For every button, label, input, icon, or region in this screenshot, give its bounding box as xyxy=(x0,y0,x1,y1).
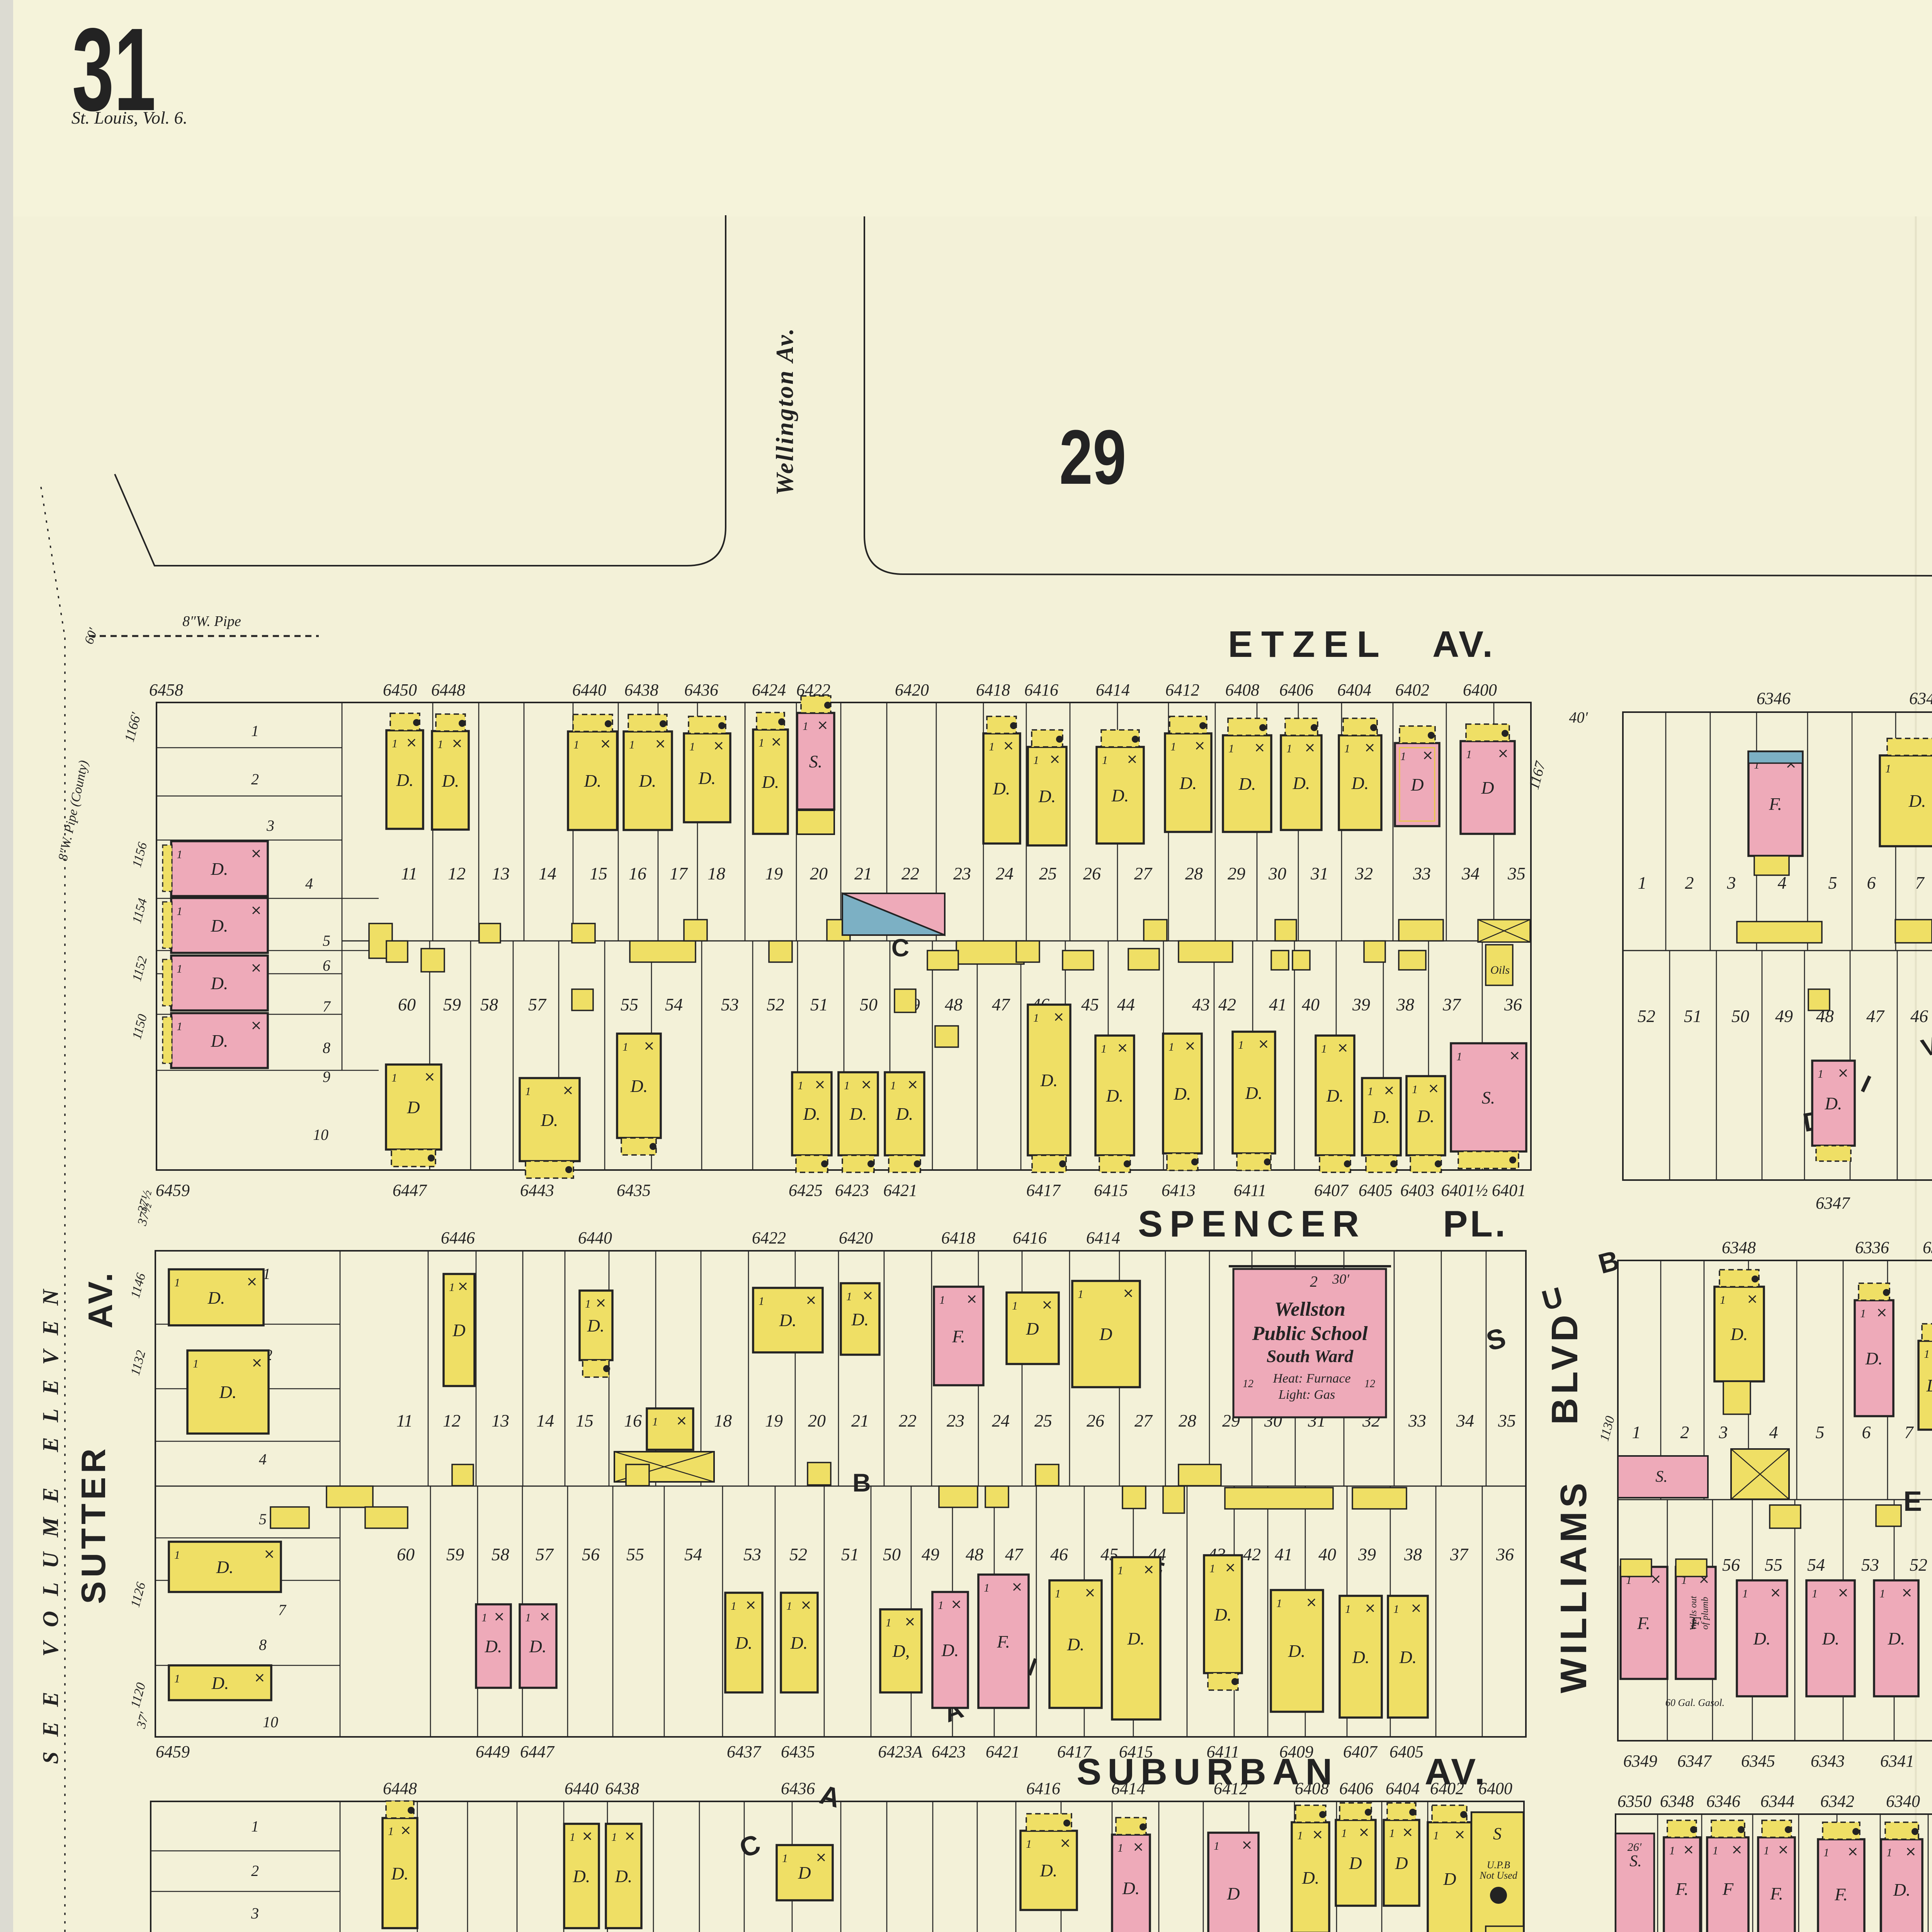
svg-text:6435: 6435 xyxy=(781,1742,815,1761)
svg-text:37: 37 xyxy=(1442,995,1461,1014)
svg-text:1: 1 xyxy=(1638,873,1647,893)
svg-text:6347: 6347 xyxy=(1677,1752,1712,1770)
svg-text:6406: 6406 xyxy=(1339,1779,1373,1798)
svg-text:4: 4 xyxy=(259,1451,267,1468)
svg-text:22: 22 xyxy=(901,864,919,883)
svg-text:D.: D. xyxy=(541,1110,558,1130)
svg-text:1: 1 xyxy=(1400,750,1406,763)
svg-text:D.: D. xyxy=(1351,773,1369,793)
svg-text:1: 1 xyxy=(177,905,182,918)
svg-text:D: D xyxy=(406,1097,420,1117)
svg-text:6401: 6401 xyxy=(1492,1181,1526,1200)
svg-text:5: 5 xyxy=(1828,873,1837,893)
svg-text:SPENCER: SPENCER xyxy=(1138,1203,1366,1245)
svg-text:31: 31 xyxy=(1310,864,1328,883)
svg-text:6346: 6346 xyxy=(1706,1792,1740,1811)
svg-text:58: 58 xyxy=(492,1544,509,1564)
svg-text:F.: F. xyxy=(1637,1613,1650,1633)
svg-text:6402: 6402 xyxy=(1430,1779,1464,1798)
svg-text:1: 1 xyxy=(1818,1068,1823,1080)
svg-text:1: 1 xyxy=(437,738,443,751)
svg-text:D.: D. xyxy=(1288,1641,1306,1661)
svg-text:6402: 6402 xyxy=(1395,680,1429,699)
svg-text:D.: D. xyxy=(1122,1878,1140,1898)
svg-text:1: 1 xyxy=(984,1582,990,1594)
svg-text:6436: 6436 xyxy=(781,1779,815,1798)
svg-text:12: 12 xyxy=(1364,1378,1375,1390)
svg-text:1: 1 xyxy=(611,1831,617,1844)
svg-text:1: 1 xyxy=(1297,1829,1303,1842)
svg-text:1: 1 xyxy=(1117,1842,1123,1854)
svg-text:1: 1 xyxy=(1632,1422,1641,1442)
svg-text:37: 37 xyxy=(1450,1544,1469,1564)
svg-text:6424: 6424 xyxy=(752,680,786,699)
svg-text:32: 32 xyxy=(1355,864,1373,883)
svg-text:42: 42 xyxy=(1218,995,1236,1014)
svg-text:6415: 6415 xyxy=(1094,1181,1128,1200)
svg-text:1: 1 xyxy=(1276,1597,1282,1610)
svg-text:6344: 6344 xyxy=(1760,1792,1794,1811)
svg-text:29: 29 xyxy=(1228,864,1245,883)
svg-text:51: 51 xyxy=(810,995,828,1014)
svg-text:1: 1 xyxy=(388,1825,394,1838)
svg-text:D.: D. xyxy=(639,771,656,791)
svg-text:27: 27 xyxy=(1134,1411,1153,1430)
svg-text:6411: 6411 xyxy=(1234,1181,1267,1200)
svg-text:20: 20 xyxy=(808,1411,826,1430)
svg-text:1: 1 xyxy=(1886,1846,1892,1859)
svg-text:1: 1 xyxy=(1885,762,1891,775)
svg-text:5: 5 xyxy=(1816,1422,1825,1442)
svg-text:53: 53 xyxy=(1861,1555,1879,1575)
svg-text:6408: 6408 xyxy=(1295,1779,1329,1798)
svg-text:6413: 6413 xyxy=(1162,1181,1196,1200)
svg-text:46: 46 xyxy=(1050,1544,1068,1564)
svg-text:1: 1 xyxy=(177,1020,182,1033)
svg-text:6344: 6344 xyxy=(1909,689,1932,708)
svg-text:1: 1 xyxy=(1860,1307,1866,1320)
svg-text:1: 1 xyxy=(890,1079,896,1092)
svg-text:6409: 6409 xyxy=(1279,1742,1313,1761)
svg-text:D: D xyxy=(1481,778,1494,798)
svg-text:S E E V O L U M E E L E V: S E E V O L U M E E L E V E N xyxy=(38,1285,63,1764)
svg-text:57: 57 xyxy=(528,995,547,1014)
svg-text:1: 1 xyxy=(1238,1039,1244,1051)
svg-text:6416: 6416 xyxy=(1024,680,1058,699)
svg-text:2: 2 xyxy=(1685,873,1694,893)
svg-text:1: 1 xyxy=(689,740,695,753)
svg-text:6417: 6417 xyxy=(1026,1181,1061,1200)
svg-text:15: 15 xyxy=(590,864,607,883)
svg-text:D.: D. xyxy=(803,1104,821,1124)
svg-text:D.: D. xyxy=(391,1864,409,1883)
svg-text:BLVD: BLVD xyxy=(1544,1311,1585,1425)
svg-text:51: 51 xyxy=(841,1544,859,1564)
svg-text:6330: 6330 xyxy=(1923,1238,1932,1257)
svg-text:D.: D. xyxy=(1173,1084,1191,1104)
svg-text:52: 52 xyxy=(1638,1006,1655,1026)
svg-text:1: 1 xyxy=(1168,1041,1174,1053)
svg-text:6414: 6414 xyxy=(1086,1228,1120,1247)
svg-text:D.: D. xyxy=(1730,1324,1748,1344)
svg-text:6438: 6438 xyxy=(624,680,658,699)
svg-text:38: 38 xyxy=(1396,995,1414,1014)
svg-text:51: 51 xyxy=(1684,1006,1702,1026)
svg-text:34: 34 xyxy=(1456,1411,1474,1430)
svg-text:22: 22 xyxy=(899,1411,917,1430)
svg-text:1: 1 xyxy=(1924,1348,1930,1361)
svg-text:6343: 6343 xyxy=(1811,1752,1845,1770)
svg-text:D.: D. xyxy=(1926,1376,1932,1395)
svg-text:1: 1 xyxy=(392,737,398,750)
svg-text:1: 1 xyxy=(1433,1829,1439,1842)
svg-text:6407: 6407 xyxy=(1314,1181,1349,1200)
svg-text:D.: D. xyxy=(1302,1868,1320,1888)
svg-text:6412: 6412 xyxy=(1165,680,1199,699)
svg-text:6423: 6423 xyxy=(932,1742,966,1761)
svg-text:1: 1 xyxy=(1389,1827,1395,1840)
svg-text:F: F xyxy=(1722,1879,1734,1899)
svg-text:6416: 6416 xyxy=(1013,1228,1047,1247)
svg-text:23: 23 xyxy=(953,864,971,883)
svg-text:6425: 6425 xyxy=(789,1181,823,1200)
svg-text:56: 56 xyxy=(1722,1555,1740,1575)
svg-text:D: D xyxy=(1443,1869,1456,1889)
svg-text:D: D xyxy=(452,1320,465,1340)
svg-text:7: 7 xyxy=(278,1601,287,1619)
svg-text:D.: D. xyxy=(1865,1349,1883,1368)
svg-text:D.: D. xyxy=(630,1076,648,1096)
svg-text:14: 14 xyxy=(536,1411,554,1430)
svg-text:52: 52 xyxy=(789,1544,807,1564)
svg-text:6459: 6459 xyxy=(156,1181,190,1200)
svg-text:6: 6 xyxy=(323,957,330,974)
svg-text:D.: D. xyxy=(211,1673,229,1693)
svg-text:D.: D. xyxy=(1245,1083,1263,1103)
svg-text:12: 12 xyxy=(1243,1378,1253,1390)
svg-text:6: 6 xyxy=(1862,1422,1871,1442)
svg-text:14: 14 xyxy=(539,864,556,883)
svg-text:59: 59 xyxy=(446,1544,464,1564)
svg-text:55: 55 xyxy=(1765,1555,1782,1575)
svg-text:21: 21 xyxy=(854,864,872,883)
svg-text:E: E xyxy=(1903,1486,1922,1517)
svg-text:6406: 6406 xyxy=(1279,680,1313,699)
svg-text:6437: 6437 xyxy=(727,1742,762,1761)
svg-text:6400: 6400 xyxy=(1478,1779,1512,1798)
svg-text:6342: 6342 xyxy=(1820,1792,1854,1811)
svg-text:9: 9 xyxy=(323,1068,330,1085)
svg-text:6438: 6438 xyxy=(605,1779,639,1798)
svg-text:52: 52 xyxy=(1910,1555,1927,1575)
svg-text:D.: D. xyxy=(219,1382,237,1402)
svg-text:6440: 6440 xyxy=(572,680,606,699)
svg-text:1: 1 xyxy=(1345,1603,1351,1616)
svg-text:1: 1 xyxy=(844,1079,850,1092)
svg-text:6346: 6346 xyxy=(1757,689,1791,708)
svg-text:2: 2 xyxy=(251,1862,259,1879)
svg-text:40: 40 xyxy=(1302,995,1320,1014)
svg-text:6440: 6440 xyxy=(565,1779,599,1798)
svg-text:19: 19 xyxy=(765,864,783,883)
svg-text:WILLIAMS: WILLIAMS xyxy=(1553,1479,1594,1694)
svg-text:30: 30 xyxy=(1268,864,1286,883)
svg-text:6418: 6418 xyxy=(976,680,1010,699)
svg-text:10: 10 xyxy=(263,1713,278,1731)
svg-text:D.: D. xyxy=(396,770,414,790)
svg-text:1: 1 xyxy=(798,1079,803,1092)
svg-text:6405: 6405 xyxy=(1359,1181,1393,1200)
svg-text:6449: 6449 xyxy=(476,1742,510,1761)
svg-text:44: 44 xyxy=(1117,995,1135,1014)
svg-text:3: 3 xyxy=(251,1905,259,1922)
svg-text:23: 23 xyxy=(947,1411,964,1430)
svg-text:17: 17 xyxy=(670,864,688,883)
svg-text:58: 58 xyxy=(480,995,498,1014)
svg-text:D.: D. xyxy=(1372,1107,1390,1127)
svg-text:D.: D. xyxy=(207,1288,225,1308)
svg-text:D.: D. xyxy=(529,1636,547,1656)
svg-text:6400: 6400 xyxy=(1463,680,1497,699)
svg-text:60 Gal. Gasol.: 60 Gal. Gasol. xyxy=(1665,1697,1725,1708)
svg-text:6345: 6345 xyxy=(1741,1752,1775,1770)
svg-text:1: 1 xyxy=(1102,754,1108,767)
svg-text:D.: D. xyxy=(790,1633,808,1653)
svg-text:1: 1 xyxy=(1742,1587,1748,1600)
svg-text:1: 1 xyxy=(1078,1288,1083,1301)
svg-text:1: 1 xyxy=(759,736,764,749)
svg-text:D.: D. xyxy=(896,1104,913,1124)
svg-text:29: 29 xyxy=(1059,414,1126,500)
svg-text:1: 1 xyxy=(391,1071,397,1084)
svg-text:6404: 6404 xyxy=(1386,1779,1420,1798)
svg-text:Wellington Av.: Wellington Av. xyxy=(771,327,798,495)
svg-text:35: 35 xyxy=(1507,864,1526,883)
svg-text:6401½: 6401½ xyxy=(1441,1181,1488,1200)
svg-text:D.: D. xyxy=(1293,773,1310,793)
svg-text:Wellston: Wellston xyxy=(1274,1298,1345,1320)
svg-text:D.: D. xyxy=(1040,1861,1058,1880)
svg-text:Walls out: Walls out xyxy=(1689,1595,1699,1630)
svg-text:D.: D. xyxy=(211,973,228,993)
svg-text:1: 1 xyxy=(846,1290,852,1303)
svg-text:3: 3 xyxy=(1719,1422,1728,1442)
svg-text:13: 13 xyxy=(492,864,510,883)
svg-text:59: 59 xyxy=(443,995,461,1014)
svg-text:6414: 6414 xyxy=(1096,680,1130,699)
svg-text:D.: D. xyxy=(1908,791,1926,811)
svg-text:18: 18 xyxy=(714,1411,732,1430)
svg-text:39: 39 xyxy=(1358,1544,1376,1564)
svg-text:6405: 6405 xyxy=(1389,1742,1423,1761)
svg-text:8: 8 xyxy=(323,1039,330,1056)
svg-text:D.: D. xyxy=(573,1866,590,1886)
svg-text:48: 48 xyxy=(966,1544,983,1564)
svg-text:1: 1 xyxy=(251,1818,259,1835)
svg-text:16: 16 xyxy=(629,864,646,883)
svg-text:6412: 6412 xyxy=(1214,1779,1248,1798)
svg-text:6447: 6447 xyxy=(393,1181,427,1200)
svg-text:6440: 6440 xyxy=(578,1228,612,1247)
svg-text:50: 50 xyxy=(860,995,878,1014)
svg-text:42: 42 xyxy=(1243,1544,1261,1564)
svg-text:1: 1 xyxy=(1341,1827,1347,1840)
svg-text:D.: D. xyxy=(1038,786,1056,806)
svg-text:1: 1 xyxy=(1033,1012,1039,1024)
svg-text:12: 12 xyxy=(443,1411,461,1430)
svg-text:B: B xyxy=(852,1468,871,1497)
svg-text:6446: 6446 xyxy=(441,1228,475,1247)
svg-text:D.: D. xyxy=(1888,1629,1905,1648)
svg-text:7: 7 xyxy=(1905,1422,1914,1442)
svg-text:S: S xyxy=(1493,1824,1502,1843)
svg-text:1: 1 xyxy=(1117,1564,1123,1577)
svg-text:1: 1 xyxy=(174,1549,180,1561)
svg-text:1: 1 xyxy=(1812,1587,1818,1600)
svg-text:6459: 6459 xyxy=(156,1742,190,1761)
svg-text:6458: 6458 xyxy=(149,680,183,699)
svg-text:1: 1 xyxy=(174,1276,180,1289)
svg-text:38: 38 xyxy=(1404,1544,1422,1564)
svg-text:1: 1 xyxy=(1466,748,1472,761)
svg-text:43: 43 xyxy=(1192,995,1210,1014)
svg-text:5: 5 xyxy=(259,1510,267,1528)
svg-text:D: D xyxy=(1410,775,1423,794)
svg-text:1: 1 xyxy=(1764,1844,1769,1857)
svg-text:D.: D. xyxy=(485,1636,502,1656)
svg-text:D.: D. xyxy=(735,1633,753,1653)
svg-text:1: 1 xyxy=(573,738,579,751)
svg-text:49: 49 xyxy=(922,1544,939,1564)
svg-text:AV.: AV. xyxy=(81,1270,119,1328)
svg-text:D.: D. xyxy=(1399,1647,1417,1667)
svg-text:7: 7 xyxy=(323,998,331,1015)
svg-text:D.: D. xyxy=(1106,1086,1124,1105)
svg-text:13: 13 xyxy=(492,1411,509,1430)
svg-text:1: 1 xyxy=(629,738,635,751)
svg-text:28: 28 xyxy=(1179,1411,1196,1430)
svg-text:33: 33 xyxy=(1408,1411,1426,1430)
svg-text:F.: F. xyxy=(1675,1879,1689,1899)
svg-text:2: 2 xyxy=(1310,1273,1318,1290)
svg-text:6421: 6421 xyxy=(883,1181,917,1200)
svg-text:1: 1 xyxy=(782,1852,788,1865)
svg-text:28: 28 xyxy=(1185,864,1203,883)
svg-text:1: 1 xyxy=(1170,740,1176,753)
svg-text:60: 60 xyxy=(398,995,416,1014)
svg-text:47: 47 xyxy=(992,995,1010,1014)
svg-text:20: 20 xyxy=(810,864,828,883)
svg-text:45: 45 xyxy=(1081,995,1099,1014)
svg-text:1: 1 xyxy=(1879,1587,1885,1600)
svg-text:35: 35 xyxy=(1498,1411,1516,1430)
svg-text:6: 6 xyxy=(1867,873,1876,893)
svg-text:2: 2 xyxy=(251,770,259,788)
svg-text:1: 1 xyxy=(525,1611,531,1624)
svg-text:C: C xyxy=(891,934,909,962)
svg-text:D.: D. xyxy=(849,1104,867,1124)
svg-text:1: 1 xyxy=(177,848,182,861)
svg-text:ETZEL: ETZEL xyxy=(1228,624,1388,665)
svg-text:1: 1 xyxy=(989,740,995,753)
svg-text:F.: F. xyxy=(1834,1884,1848,1904)
svg-text:D: D xyxy=(1395,1853,1408,1873)
svg-text:S.: S. xyxy=(1629,1852,1642,1870)
svg-text:6418: 6418 xyxy=(941,1228,975,1247)
svg-text:10: 10 xyxy=(313,1126,328,1143)
svg-text:34: 34 xyxy=(1461,864,1480,883)
svg-text:39: 39 xyxy=(1352,995,1370,1014)
svg-text:6404: 6404 xyxy=(1337,680,1371,699)
svg-text:6423: 6423 xyxy=(835,1181,869,1200)
svg-text:6340: 6340 xyxy=(1886,1792,1920,1811)
svg-text:D.: D. xyxy=(1753,1629,1771,1648)
svg-text:D.: D. xyxy=(1352,1647,1370,1667)
svg-text:1: 1 xyxy=(174,1672,180,1685)
svg-text:1: 1 xyxy=(1367,1085,1373,1098)
svg-text:50: 50 xyxy=(1731,1006,1749,1026)
svg-text:11: 11 xyxy=(401,864,418,883)
svg-text:41: 41 xyxy=(1269,995,1287,1014)
svg-text:Light: Gas: Light: Gas xyxy=(1278,1388,1335,1402)
svg-text:D.: D. xyxy=(584,771,602,791)
svg-text:6416: 6416 xyxy=(1026,1779,1060,1798)
svg-text:5: 5 xyxy=(323,932,330,949)
svg-text:D.: D. xyxy=(442,771,459,791)
svg-text:54: 54 xyxy=(665,995,683,1014)
svg-text:1: 1 xyxy=(803,720,808,733)
svg-text:1: 1 xyxy=(1012,1299,1018,1312)
svg-text:South Ward: South Ward xyxy=(1267,1346,1354,1366)
svg-text:1: 1 xyxy=(585,1298,591,1310)
svg-text:D.: D. xyxy=(941,1640,959,1660)
svg-text:F.: F. xyxy=(1770,1884,1783,1903)
svg-text:1: 1 xyxy=(177,963,182,975)
svg-text:12: 12 xyxy=(448,864,466,883)
svg-text:Not Used: Not Used xyxy=(1479,1870,1518,1881)
svg-text:1: 1 xyxy=(525,1085,531,1098)
svg-text:1: 1 xyxy=(1214,1840,1219,1852)
svg-text:D,: D, xyxy=(892,1641,910,1661)
svg-text:D.: D. xyxy=(1111,786,1129,805)
svg-text:D: D xyxy=(1026,1319,1039,1338)
svg-text:1: 1 xyxy=(1720,1294,1726,1306)
svg-text:D.: D. xyxy=(1417,1106,1435,1126)
svg-text:1: 1 xyxy=(1228,742,1234,755)
svg-text:6347: 6347 xyxy=(1816,1194,1850,1213)
svg-text:2: 2 xyxy=(1680,1422,1689,1442)
svg-text:D.: D. xyxy=(1238,774,1256,794)
svg-text:1: 1 xyxy=(1412,1083,1418,1096)
svg-text:40: 40 xyxy=(1318,1544,1336,1564)
svg-text:21: 21 xyxy=(851,1411,869,1430)
svg-text:D: D xyxy=(1349,1853,1362,1873)
svg-text:3: 3 xyxy=(266,817,274,834)
svg-text:48: 48 xyxy=(945,995,963,1014)
svg-text:S.: S. xyxy=(1655,1468,1668,1486)
svg-text:18: 18 xyxy=(707,864,725,883)
svg-text:6417: 6417 xyxy=(1057,1742,1092,1761)
svg-text:1: 1 xyxy=(786,1600,792,1612)
svg-text:1: 1 xyxy=(481,1611,487,1624)
svg-text:6414: 6414 xyxy=(1111,1779,1145,1798)
svg-text:8: 8 xyxy=(259,1636,267,1653)
svg-text:6348: 6348 xyxy=(1722,1238,1756,1257)
svg-text:D.: D. xyxy=(211,859,228,879)
svg-text:46: 46 xyxy=(1910,1006,1928,1026)
svg-text:36: 36 xyxy=(1504,995,1522,1014)
svg-text:16: 16 xyxy=(624,1411,642,1430)
